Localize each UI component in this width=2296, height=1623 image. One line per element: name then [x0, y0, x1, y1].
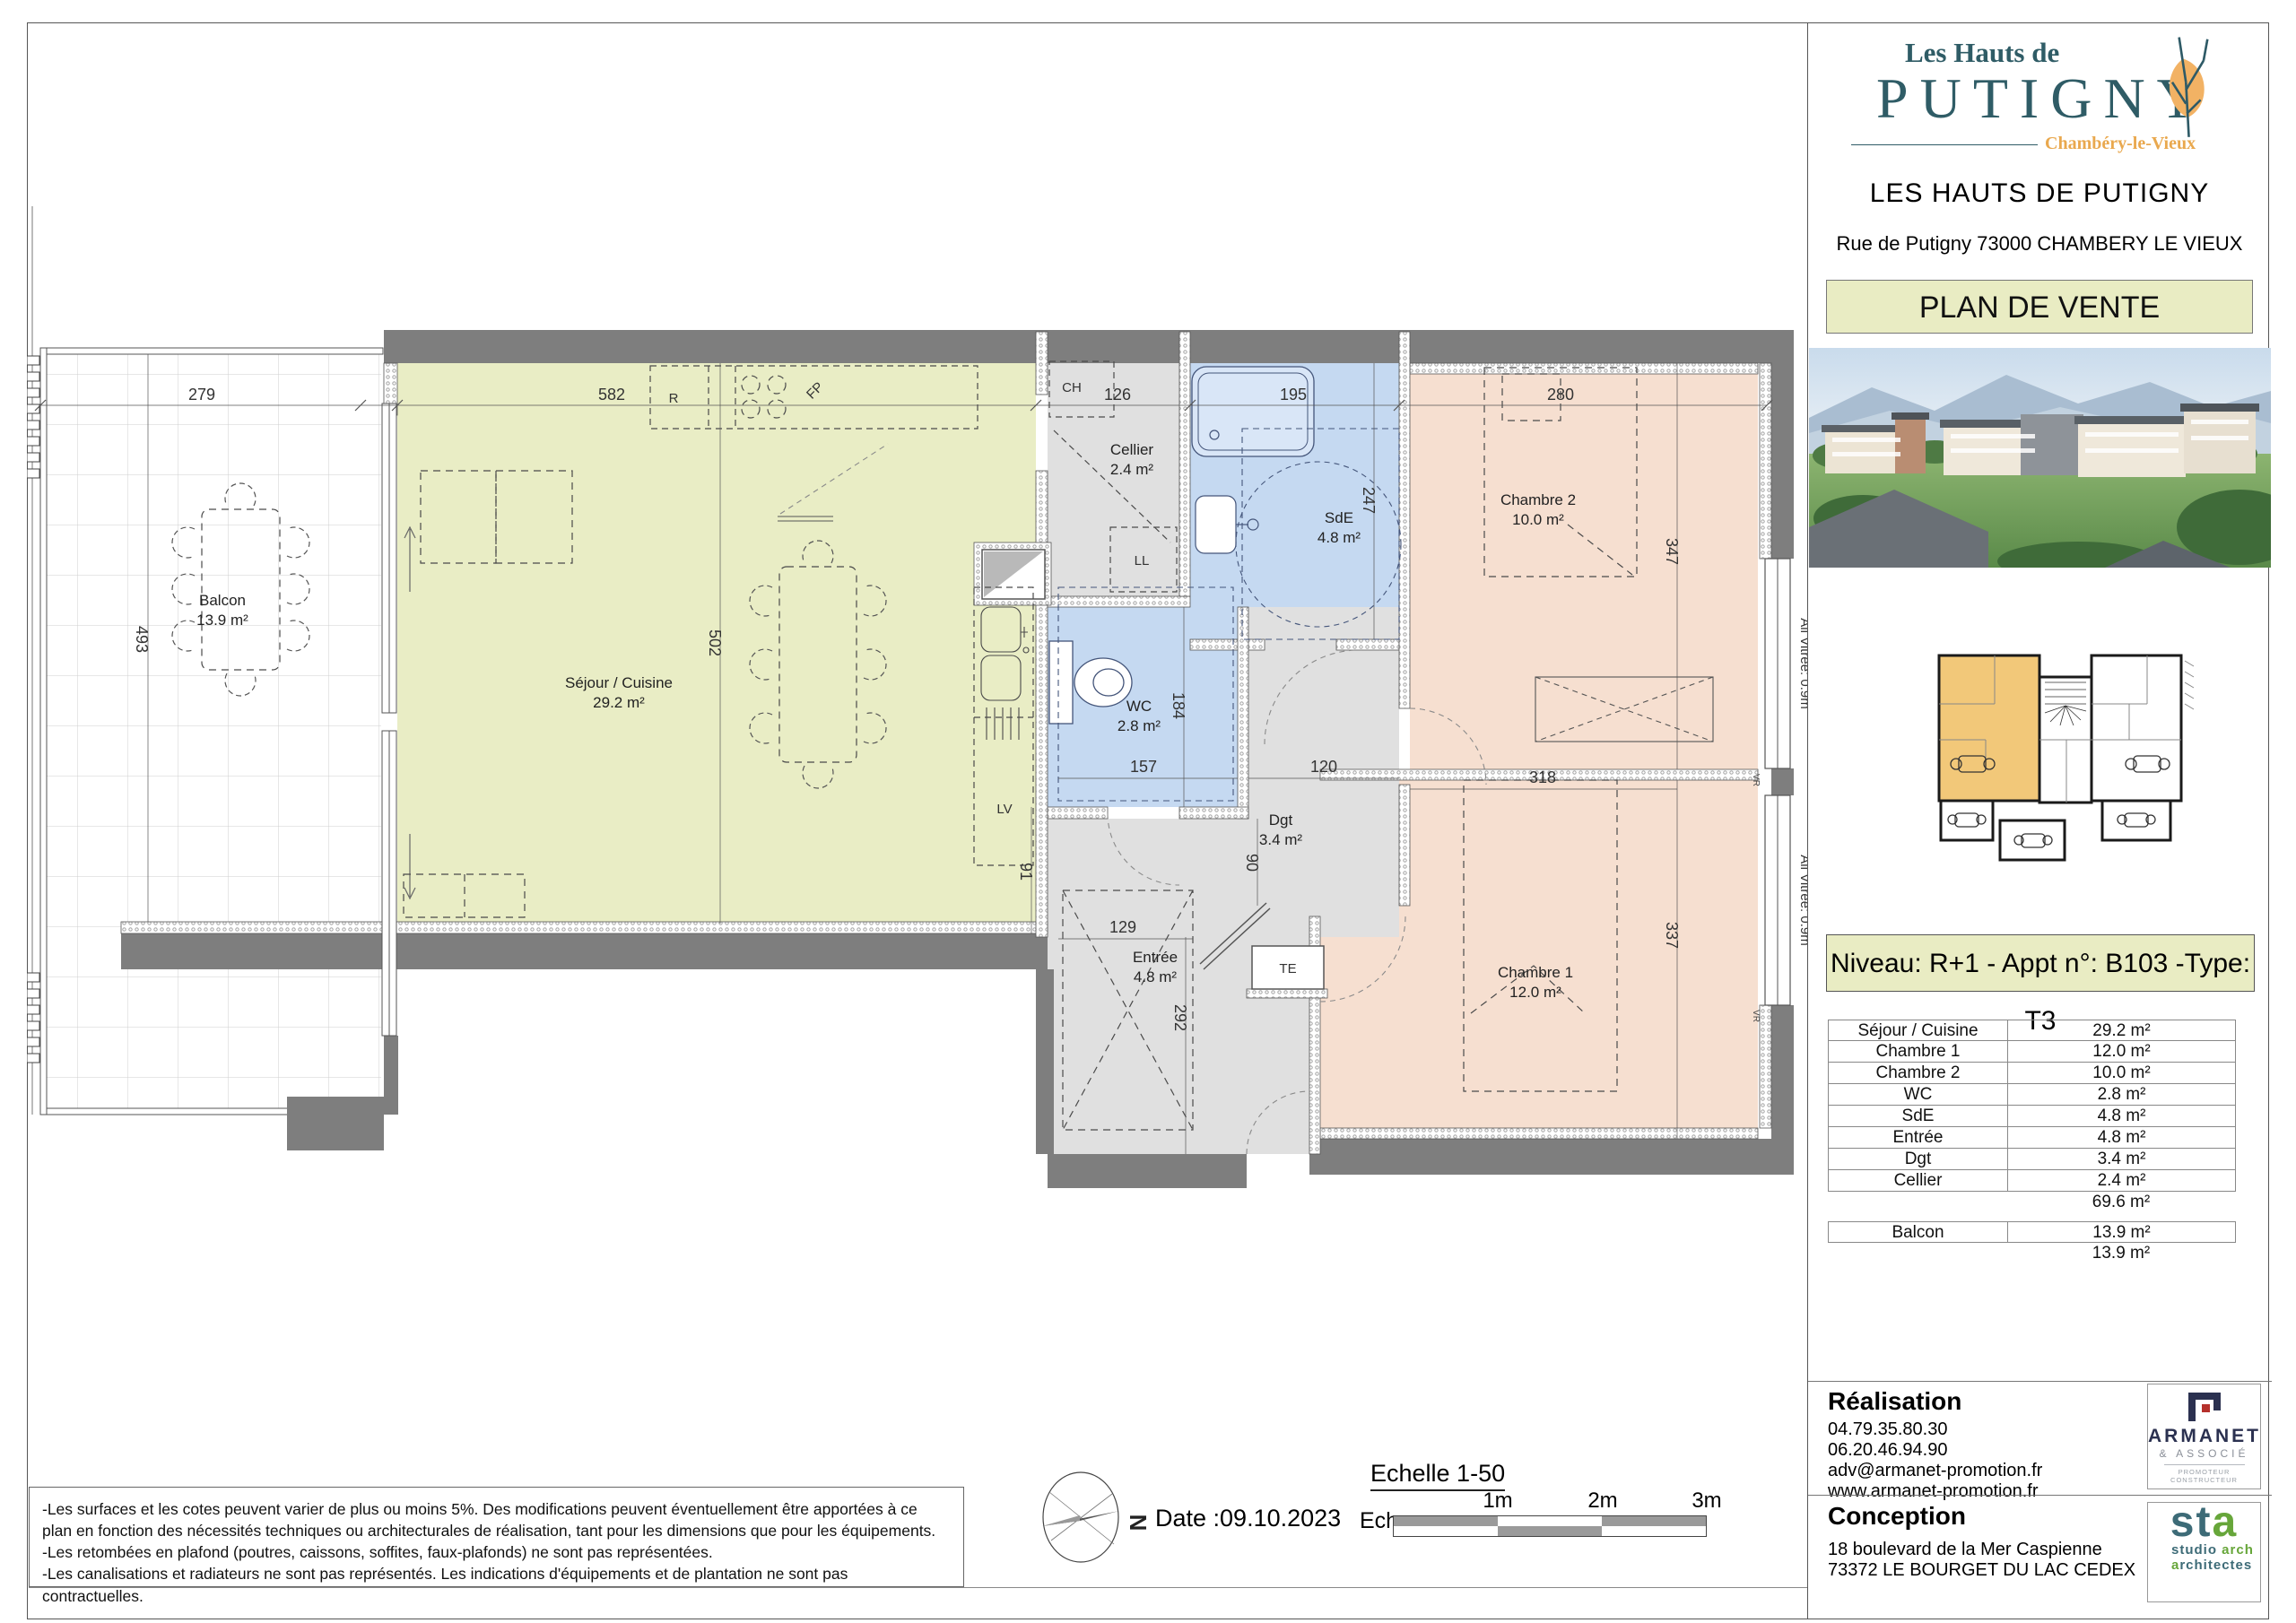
conception-title: Conception — [1828, 1502, 1966, 1531]
svg-text:2.8 m²: 2.8 m² — [1118, 717, 1161, 734]
svg-text:2.4 m²: 2.4 m² — [1110, 461, 1154, 478]
svg-text:Chambre 2: Chambre 2 — [1500, 491, 1576, 508]
svg-text:WC: WC — [1126, 698, 1152, 715]
balcony-total-row: 13.9 m² — [1828, 1243, 2236, 1264]
water-heater-label: CH — [1062, 380, 1082, 395]
disclaimer-line: -Les surfaces et les cotes peuvent varie… — [42, 1498, 951, 1541]
sidebar: Les Hauts de PUTIGNY Chambéry-le-Vieux L… — [1807, 22, 2271, 1619]
svg-text:Balcon: Balcon — [199, 592, 246, 609]
logo-sub-text: Chambéry-le-Vieux — [2045, 134, 2196, 154]
svg-text:13.9 m²: 13.9 m² — [196, 612, 248, 629]
armanet-name: ARMANET — [2148, 1426, 2260, 1447]
scale-title: Echelle 1-50 — [1370, 1460, 1505, 1491]
sta-line1: studio arch — [2148, 1542, 2260, 1558]
closet-chambre2 — [1535, 677, 1713, 742]
svg-text:Chambre 1: Chambre 1 — [1498, 964, 1573, 981]
sejour-window-bays — [382, 404, 396, 1036]
svg-text:12.0 m²: 12.0 m² — [1509, 984, 1561, 1001]
section-divider — [1808, 1495, 2272, 1496]
table-row: Séjour / Cuisine29.2 m² — [1828, 1020, 2236, 1041]
sta-logo: sta studio arch architectes — [2147, 1502, 2261, 1602]
disclaimer-box: -Les surfaces et les cotes peuvent varie… — [29, 1487, 964, 1587]
floor-plan: All Vitrée: 0.9m All Vitrée: 0.9m VR VR … — [27, 22, 1807, 1587]
svg-text:Cellier: Cellier — [1110, 441, 1154, 458]
svg-text:91: 91 — [1017, 863, 1035, 881]
north-label: N — [1125, 1515, 1146, 1532]
realisation-email: adv@armanet-promotion.fr — [1828, 1461, 2042, 1481]
svg-text:Séjour / Cuisine: Séjour / Cuisine — [565, 674, 673, 691]
svg-text:4.8 m²: 4.8 m² — [1134, 968, 1178, 985]
sta-mark: sta — [2148, 1503, 2260, 1542]
vr-label-2: VR — [1751, 1010, 1761, 1022]
key-plan — [1932, 650, 2201, 865]
scale-bar — [1393, 1515, 1707, 1537]
table-row: WC2.8 m² — [1828, 1084, 2236, 1106]
washer-label: LL — [1135, 553, 1150, 568]
svg-text:120: 120 — [1310, 758, 1337, 776]
vr-label-1: VR — [1751, 774, 1761, 786]
realisation-phone2: 06.20.46.94.90 — [1828, 1440, 1947, 1461]
svg-text:90: 90 — [1243, 854, 1261, 872]
disclaimer-line: -Les retombées en plafond (poutres, cais… — [42, 1541, 951, 1563]
svg-text:337: 337 — [1663, 922, 1681, 949]
svg-text:129: 129 — [1109, 918, 1136, 936]
table-row: Chambre 112.0 m² — [1828, 1041, 2236, 1063]
electrical-panel: TE — [1252, 946, 1324, 989]
realisation-phone1: 04.79.35.80.30 — [1828, 1419, 1947, 1440]
project-render-photo — [1809, 348, 2271, 568]
realisation-website: www.armanet-promotion.fr — [1828, 1481, 2039, 1502]
svg-text:184: 184 — [1170, 692, 1187, 719]
svg-text:582: 582 — [598, 386, 625, 404]
brand-logo: Les Hauts de PUTIGNY Chambéry-le-Vieux — [1851, 37, 2237, 171]
svg-text:247: 247 — [1360, 487, 1378, 514]
window-label-1: All Vitrée: 0.9m — [1797, 618, 1807, 708]
balcony-total: 13.9 m² — [2006, 1243, 2236, 1264]
svg-text:29.2 m²: 29.2 m² — [593, 694, 645, 711]
total-area: 69.6 m² — [2006, 1192, 2236, 1213]
table-row: SdE4.8 m² — [1828, 1106, 2236, 1127]
conception-address1: 18 boulevard de la Mer Caspienne — [1828, 1540, 2102, 1560]
neighbour-wall-edge — [27, 206, 39, 1115]
table-row: Entrée4.8 m² — [1828, 1127, 2236, 1149]
svg-text:10.0 m²: 10.0 m² — [1512, 511, 1564, 528]
conception-address2: 73372 LE BOURGET DU LAC CEDEX — [1828, 1560, 2135, 1581]
svg-text:4.8 m²: 4.8 m² — [1318, 529, 1361, 546]
svg-text:292: 292 — [1171, 1004, 1189, 1031]
table-row: Dgt3.4 m² — [1828, 1149, 2236, 1170]
sta-line2: architectes — [2148, 1558, 2260, 1573]
armanet-mark-icon — [2185, 1390, 2224, 1424]
svg-text:Entrée: Entrée — [1133, 949, 1178, 966]
project-title: LES HAUTS DE PUTIGNY — [1808, 178, 2271, 209]
scale-mark-3m: 3m — [1692, 1488, 1721, 1514]
plan-de-vente-banner: PLAN DE VENTE — [1826, 280, 2253, 334]
logo-divider — [1851, 144, 2038, 145]
svg-text:318: 318 — [1529, 768, 1556, 786]
compass: N — [1030, 1467, 1146, 1570]
svg-text:195: 195 — [1280, 386, 1307, 404]
armanet-sub: & ASSOCIÉ — [2148, 1447, 2260, 1460]
shower-tray — [1192, 367, 1314, 456]
armanet-logo: ARMANET & ASSOCIÉ PROMOTEUR CONSTRUCTEUR — [2147, 1384, 2261, 1489]
scale-mark-1m: 1m — [1483, 1488, 1512, 1514]
svg-text:3.4 m²: 3.4 m² — [1259, 831, 1303, 848]
svg-text:Dgt: Dgt — [1269, 811, 1293, 829]
realisation-title: Réalisation — [1828, 1387, 1961, 1416]
table-total-row: 69.6 m² — [1828, 1192, 2236, 1213]
apartment-banner: Niveau: R+1 - Appt n°: B103 -Type: T3 — [1826, 934, 2255, 992]
svg-text:279: 279 — [188, 386, 215, 404]
logo-top-text: Les Hauts de — [1905, 37, 2059, 69]
section-divider — [1808, 1381, 2272, 1382]
te-label: TE — [1279, 961, 1296, 976]
armanet-tagline: PROMOTEUR CONSTRUCTEUR — [2148, 1468, 2260, 1484]
svg-text:347: 347 — [1663, 538, 1681, 565]
disclaimer-line: -Les canalisations et radiateurs ne sont… — [42, 1563, 951, 1606]
svg-text:126: 126 — [1104, 386, 1131, 404]
svg-text:SdE: SdE — [1325, 509, 1353, 526]
svg-text:280: 280 — [1547, 386, 1574, 404]
fridge-label: R — [669, 391, 679, 406]
table-row: Chambre 210.0 m² — [1828, 1063, 2236, 1084]
date-label: Date :09.10.2023 — [1155, 1505, 1341, 1532]
window-label-2: All Vitrée: 0.9m — [1797, 855, 1807, 945]
table-row: Cellier2.4 m² — [1828, 1170, 2236, 1192]
svg-text:157: 157 — [1130, 758, 1157, 776]
balcony-floor — [47, 352, 381, 1108]
areas-table: Séjour / Cuisine29.2 m² Chambre 112.0 m²… — [1828, 1020, 2236, 1264]
balcony-row: Balcon13.9 m² — [1828, 1221, 2236, 1243]
tree-icon — [2147, 31, 2219, 139]
svg-text:502: 502 — [706, 629, 724, 656]
project-address: Rue de Putigny 73000 CHAMBERY LE VIEUX — [1808, 232, 2271, 256]
svg-text:493: 493 — [133, 626, 151, 653]
scale-mark-2m: 2m — [1587, 1488, 1617, 1514]
dishwasher-label: LV — [996, 802, 1012, 817]
duct-shaft — [974, 542, 1051, 605]
